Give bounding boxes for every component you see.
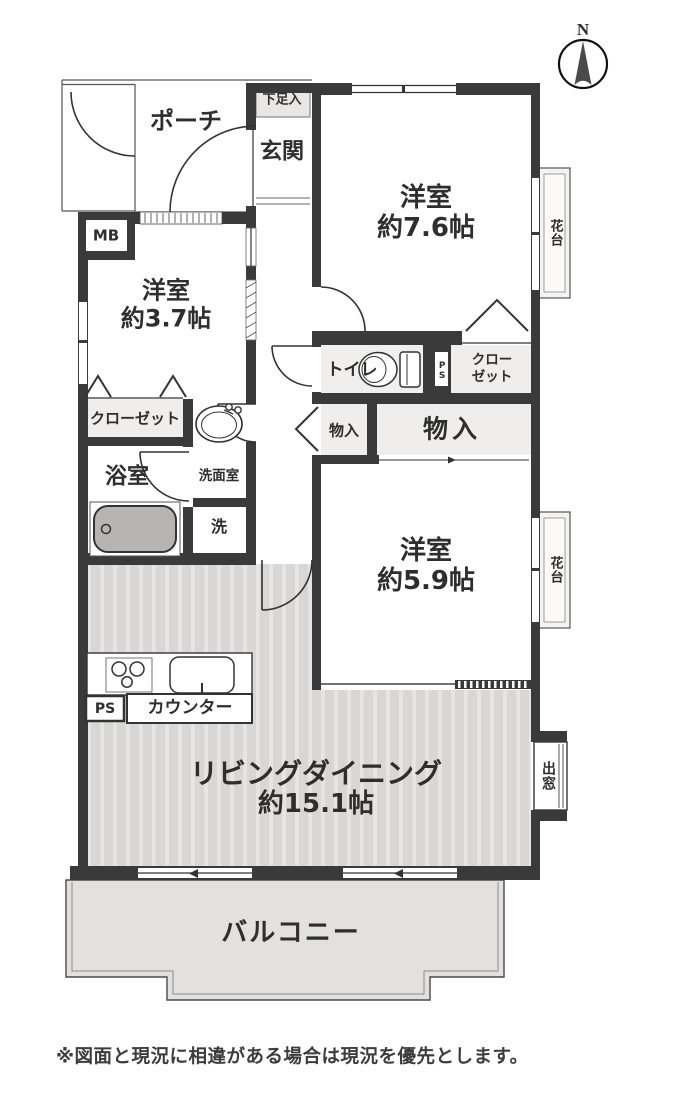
- room-label-laundry: 洗: [211, 518, 227, 536]
- label-bay-window: 出窓: [540, 761, 556, 791]
- room-label-porch: ポーチ: [150, 108, 222, 136]
- room-label-toilet: トイレ: [327, 361, 378, 381]
- room-label-shoe-cabinet: 下足入: [262, 94, 301, 109]
- room-label-bathroom: 浴室: [105, 464, 149, 489]
- compass-icon: [559, 40, 607, 88]
- sink-icon: [196, 404, 242, 442]
- room-label-closet-west: クローゼット: [90, 410, 180, 427]
- room-label-western-room-5-9: 洋室 約5.9帖: [377, 537, 475, 597]
- room-label-meter-box: MB: [93, 227, 119, 244]
- room-label-closet-east: クロー ゼット: [472, 352, 513, 386]
- room-label-storage-large: 物入: [423, 416, 481, 445]
- floor-plan: N ポーチ 下足入 玄関 MB 洋室 約7.6帖 洋室 約3.7帖 洋室 約5.…: [0, 0, 674, 1114]
- stove-icon: [106, 658, 152, 692]
- compass-north-label: N: [577, 20, 589, 40]
- comb-partition: [321, 680, 531, 689]
- room-label-balcony: バルコニー: [221, 919, 360, 949]
- label-counter: カウンター: [148, 699, 233, 719]
- room-label-living-dining: リビングダイニング 約15.1帖: [190, 758, 442, 820]
- room-label-washroom: 洗面室: [199, 469, 240, 485]
- label-flower-stand-north: 花台: [547, 219, 562, 247]
- label-pipe-space-kitchen: PS: [95, 701, 115, 717]
- label-flower-stand-south: 花台: [547, 556, 562, 584]
- room-label-western-room-7-6: 洋室 約7.6帖: [377, 184, 475, 244]
- label-pipe-space-toilet: PS: [437, 361, 447, 381]
- disclaimer-note: ※図面と現況に相違がある場合は現況を優先とします。: [56, 1046, 529, 1067]
- room-label-western-room-3-7: 洋室 約3.7帖: [121, 277, 212, 332]
- kitchen-sink-icon: [170, 657, 234, 693]
- room-label-storage-small: 物入: [329, 422, 359, 439]
- room-label-entrance: 玄関: [260, 139, 304, 164]
- bathtub-icon: [90, 502, 180, 556]
